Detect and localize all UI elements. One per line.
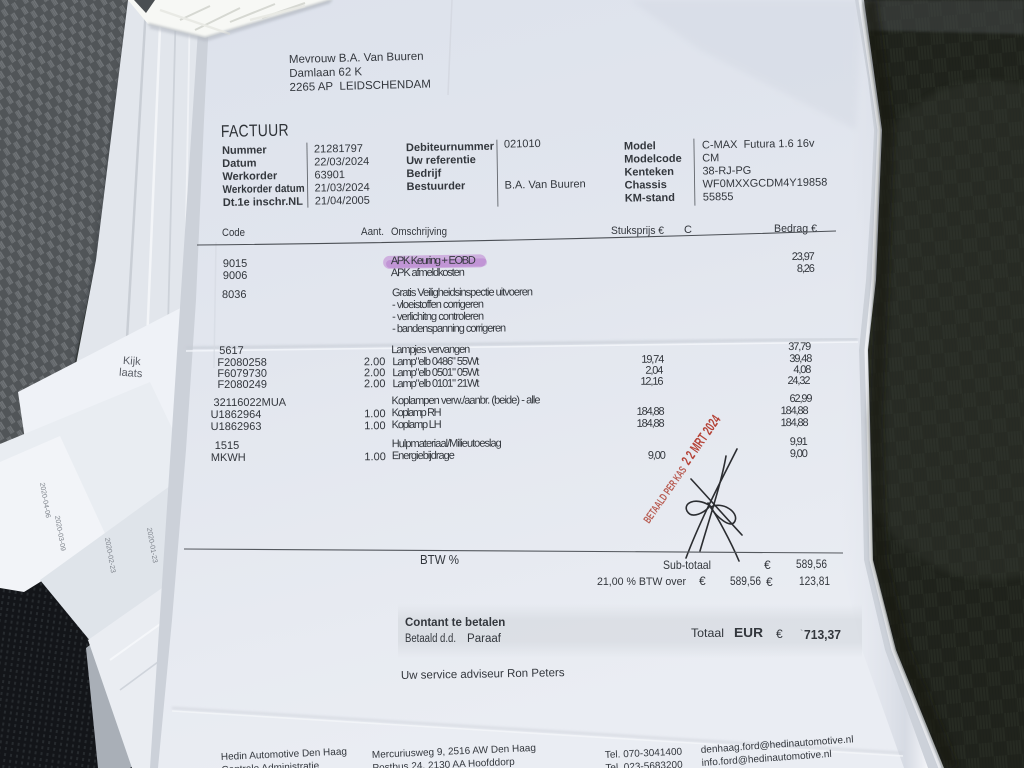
svg-text:Chassis: Chassis [625, 179, 667, 192]
svg-text:8,26: 8,26 [797, 263, 815, 275]
svg-text:Model: Model [624, 140, 656, 152]
svg-text:Sub-totaal: Sub-totaal [663, 558, 711, 572]
svg-text:€: € [766, 575, 773, 589]
svg-text:CM: CM [702, 152, 719, 164]
svg-text:Debiteurnummer: Debiteurnummer [406, 141, 495, 154]
svg-text:C-MAX Futura 1.6 16v: C-MAX Futura 1.6 16v [702, 138, 815, 152]
svg-text:Kenteken: Kenteken [624, 166, 674, 179]
svg-text:laats: laats [119, 367, 144, 381]
svg-text:Modelcode: Modelcode [624, 153, 682, 166]
svg-text:- bandenspanning corrigeren: - bandenspanning corrigeren [392, 323, 506, 336]
svg-text:Dt.1e inschr.NL: Dt.1e inschr.NL [223, 196, 304, 209]
svg-text:55855: 55855 [703, 191, 734, 203]
svg-text:Uw referentie: Uw referentie [406, 154, 476, 167]
svg-text:Omschrijving: Omschrijving [391, 226, 447, 238]
svg-text:€: € [699, 574, 706, 588]
svg-text:APK afmeldkosten: APK afmeldkosten [391, 267, 465, 279]
svg-text:APK Keuring + EOBD: APK Keuring + EOBD [391, 255, 476, 267]
svg-text:€: € [776, 627, 783, 641]
svg-text:9015: 9015 [223, 258, 248, 270]
svg-text:Hulpmateriaal/Milieutoeslag: Hulpmateriaal/Milieutoeslag [392, 438, 502, 451]
svg-text:MKWH: MKWH [211, 452, 246, 464]
svg-text:589,56: 589,56 [730, 574, 761, 588]
svg-text:Betaald d.d.: Betaald d.d. [405, 633, 456, 645]
svg-text:21281797: 21281797 [314, 143, 363, 156]
svg-text:Lampjes vervangen: Lampjes vervangen [391, 344, 470, 356]
svg-text:589,56: 589,56 [796, 557, 827, 571]
svg-text:21,00 % BTW over: 21,00 % BTW over [597, 576, 686, 588]
svg-text:KM-stand: KM-stand [625, 192, 675, 205]
svg-text:- vloeistoffen corrigeren: - vloeistoffen corrigeren [392, 299, 484, 311]
svg-text:713,37: 713,37 [804, 628, 841, 642]
svg-text:5617: 5617 [219, 345, 244, 357]
svg-text:Koplamp RH: Koplamp RH [392, 407, 442, 419]
svg-text:C: C [684, 224, 692, 236]
svg-text:9,91: 9,91 [790, 436, 808, 448]
svg-text:2.00: 2.00 [364, 378, 385, 390]
svg-text:021010: 021010 [504, 138, 541, 151]
svg-text:Stuksprijs €: Stuksprijs € [611, 225, 664, 237]
svg-text:U1862963: U1862963 [211, 421, 262, 433]
svg-text:9006: 9006 [223, 270, 248, 282]
svg-text:38-RJ-PG: 38-RJ-PG [702, 165, 751, 178]
svg-text:1515: 1515 [215, 440, 240, 452]
svg-text:Energiebijdrage: Energiebijdrage [392, 450, 455, 462]
svg-text:Koplamp LH: Koplamp LH [392, 419, 442, 431]
svg-text:B.A. Van Buuren: B.A. Van Buuren [504, 178, 585, 191]
svg-text:63901: 63901 [314, 169, 345, 181]
svg-text:37,79: 37,79 [788, 341, 811, 353]
svg-text:Koplampen verw./aanbr. (beide): Koplampen verw./aanbr. (beide) - alle [392, 394, 541, 407]
svg-text:9,00: 9,00 [790, 448, 808, 460]
svg-text:1.00: 1.00 [364, 420, 385, 432]
svg-text:`: ` [800, 628, 803, 640]
svg-text:EUR: EUR [734, 625, 764, 640]
svg-text:Werkorder datum: Werkorder datum [223, 183, 305, 196]
svg-text:62,99: 62,99 [789, 393, 812, 405]
svg-text:184,88: 184,88 [637, 406, 665, 418]
svg-text:F2080249: F2080249 [217, 379, 267, 391]
svg-text:184,88: 184,88 [637, 418, 665, 430]
svg-text:U1862964: U1862964 [211, 409, 262, 421]
svg-text:184,88: 184,88 [781, 405, 809, 417]
svg-text:32116022MUA: 32116022MUA [214, 397, 287, 409]
svg-text:8036: 8036 [222, 289, 247, 301]
svg-text:24,32: 24,32 [787, 375, 810, 387]
svg-text:Lamp"elb 0101" 21Wt: Lamp"elb 0101" 21Wt [392, 378, 479, 390]
svg-text:Gratis Veiligheidsinspectie ui: Gratis Veiligheidsinspectie uitvoeren [392, 286, 533, 299]
svg-text:1.00: 1.00 [364, 408, 385, 420]
svg-text:12,16: 12,16 [640, 376, 663, 388]
svg-text:BTW %: BTW % [420, 553, 459, 567]
svg-text:23,97: 23,97 [792, 251, 815, 263]
svg-text:1.00: 1.00 [364, 451, 385, 463]
svg-text:21/04/2005: 21/04/2005 [315, 195, 370, 208]
svg-text:Nummer: Nummer [222, 144, 268, 157]
svg-text:Werkorder: Werkorder [222, 170, 278, 183]
svg-text:Paraaf: Paraaf [467, 633, 502, 645]
svg-text:Contant te betalen: Contant te betalen [405, 617, 505, 629]
svg-text:FACTUUR: FACTUUR [221, 121, 289, 141]
svg-text:€: € [764, 558, 771, 572]
svg-text:22/03/2024: 22/03/2024 [314, 156, 369, 169]
svg-text:Totaal: Totaal [691, 626, 724, 640]
svg-text:21/03/2024: 21/03/2024 [315, 182, 370, 195]
svg-text:Bestuurder: Bestuurder [407, 180, 467, 193]
svg-text:Damlaan 62 K: Damlaan 62 K [289, 66, 362, 80]
svg-text:184,88: 184,88 [781, 417, 809, 429]
svg-text:9,00: 9,00 [648, 450, 666, 462]
svg-text:Datum: Datum [222, 157, 257, 170]
svg-text:Bedrijf: Bedrijf [406, 168, 441, 181]
svg-text:WF0MXXGCDM4Y19858: WF0MXXGCDM4Y19858 [703, 176, 828, 190]
svg-text:Code: Code [222, 227, 245, 239]
svg-text:Aant.: Aant. [361, 226, 384, 238]
svg-text:123,81: 123,81 [799, 574, 830, 588]
svg-text:- verlichitng controleren: - verlichitng controleren [392, 311, 484, 323]
